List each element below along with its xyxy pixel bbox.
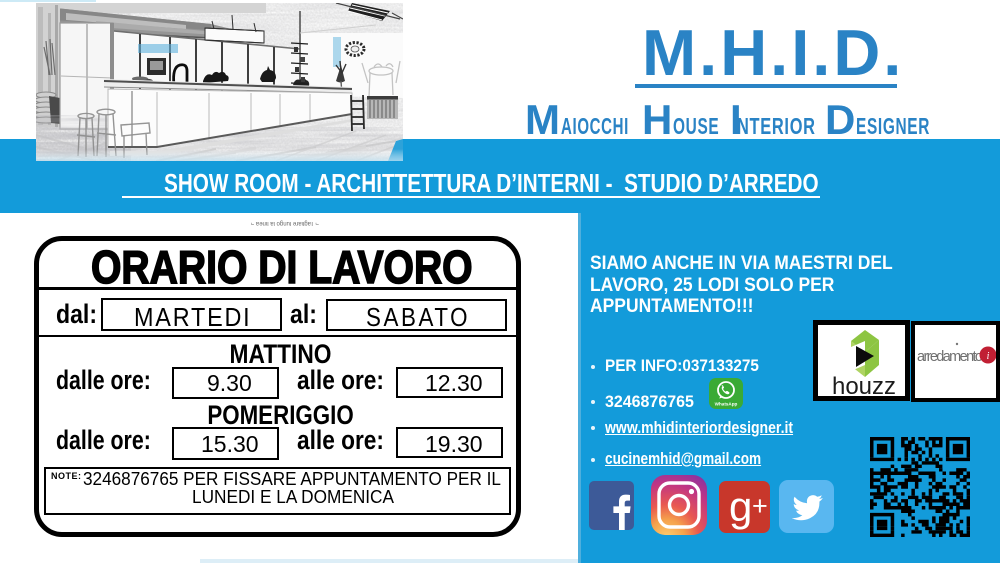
svg-text:WhatsApp: WhatsApp [715,402,738,407]
svg-text:i: i [987,351,990,362]
svg-text:arredamento: arredamento [917,349,983,365]
svg-text:g: g [729,483,752,530]
svg-text:houzz: houzz [832,373,896,396]
svg-text:+: + [752,491,768,521]
